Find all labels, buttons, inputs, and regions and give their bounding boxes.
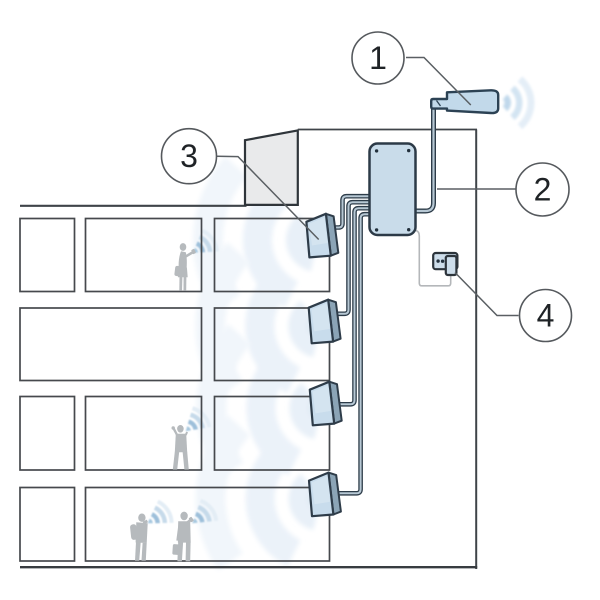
svg-text:3: 3 xyxy=(180,138,198,174)
svg-text:2: 2 xyxy=(534,172,552,208)
svg-text:4: 4 xyxy=(537,298,555,334)
svg-text:1: 1 xyxy=(369,40,387,76)
